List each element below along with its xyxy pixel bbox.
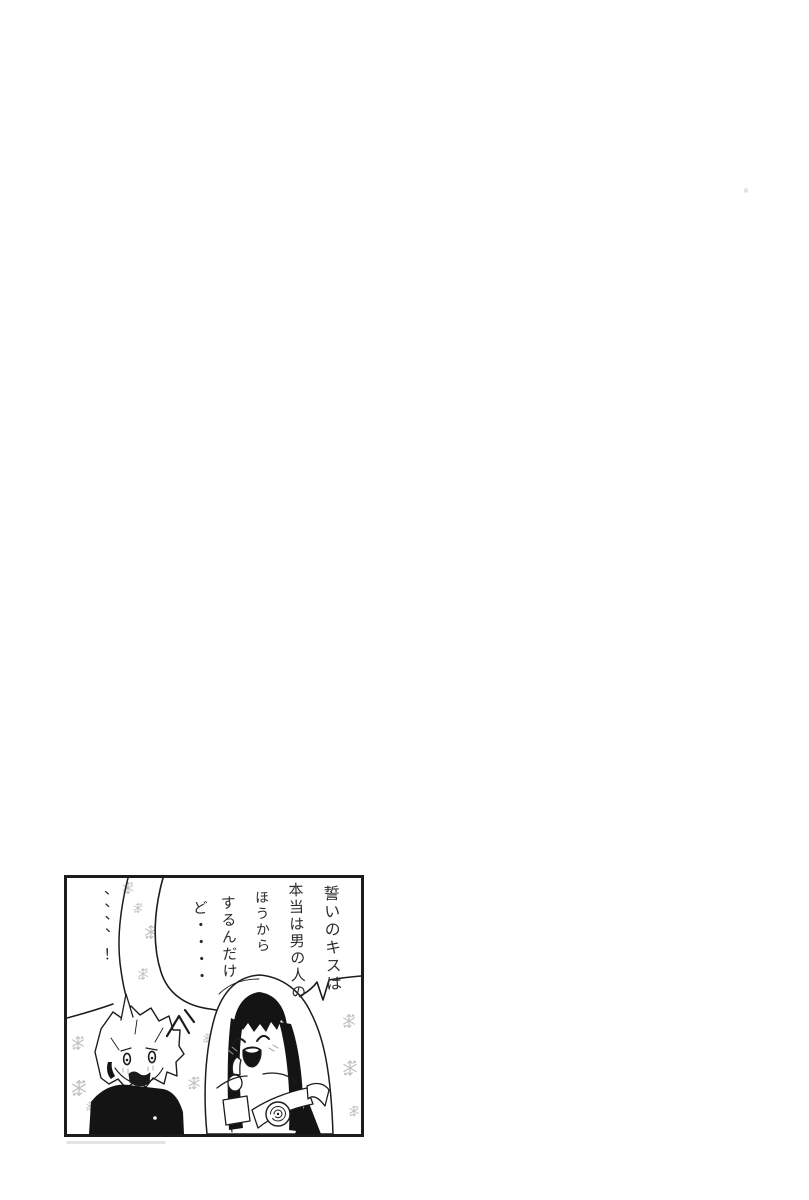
scan-artifact-dot [744, 188, 748, 193]
rose-corsage [266, 1102, 290, 1126]
bride-dialogue-column-2: 本当は男の人の [286, 882, 306, 1001]
bride-dialogue-column-4: するんだけ [219, 895, 238, 980]
bride-dialogue-column-3: ほうから [252, 890, 269, 954]
groom-figure [89, 994, 184, 1134]
groom-dialogue-column: 、、、、！ [93, 890, 112, 968]
scan-smudge-line [66, 1141, 166, 1144]
groom-suit [89, 1085, 184, 1134]
manga-page: { "page": { "background_color": "#ffffff… [0, 0, 809, 1200]
bride-dialogue-column-5: ど・・・・ [191, 900, 210, 985]
bride-dialogue-column-1: 誓いのキスは [321, 885, 342, 993]
bride-figure [205, 975, 333, 1134]
comic-panel: 誓いのキスは 本当は男の人の ほうから するんだけ ど・・・・ 、、、、！ [64, 875, 364, 1137]
blank-page-background: 誓いのキスは 本当は男の人の ほうから するんだけ ど・・・・ 、、、、！ [0, 0, 809, 1200]
